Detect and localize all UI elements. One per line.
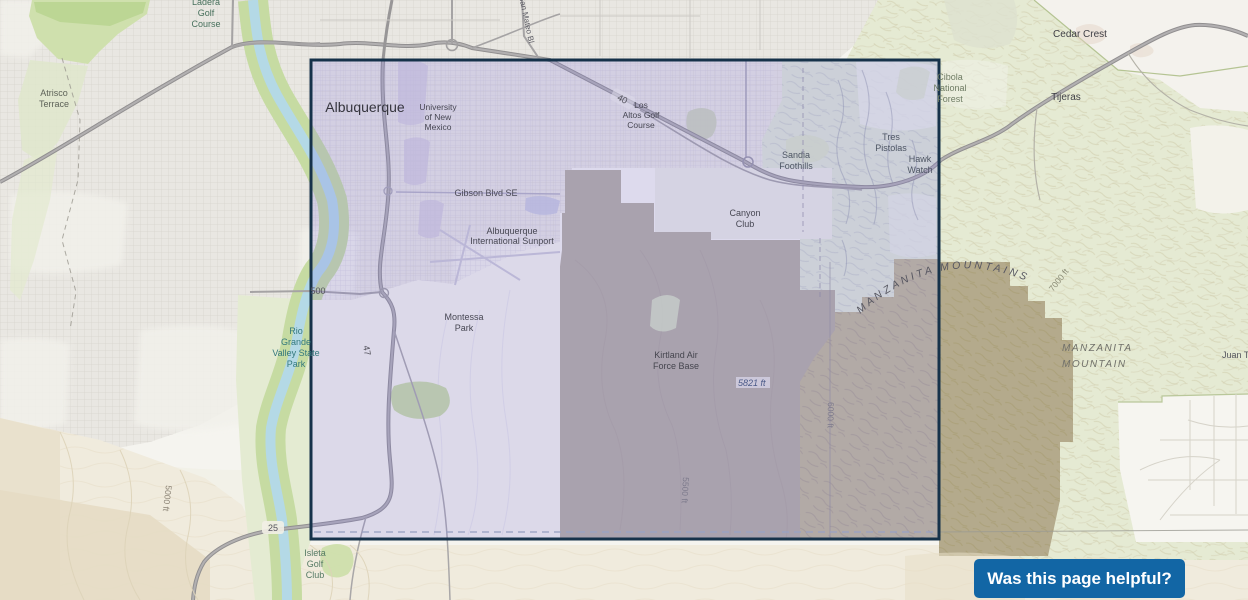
svg-text:Grande: Grande bbox=[281, 337, 311, 347]
svg-text:Forest: Forest bbox=[937, 94, 963, 104]
svg-text:500: 500 bbox=[310, 286, 325, 296]
svg-text:Golf: Golf bbox=[198, 8, 215, 18]
svg-text:Rio: Rio bbox=[289, 326, 303, 336]
svg-text:Albuquerque: Albuquerque bbox=[325, 99, 405, 115]
svg-text:Los: Los bbox=[634, 100, 648, 110]
svg-text:6000 ft: 6000 ft bbox=[826, 402, 836, 429]
svg-text:International Sunport: International Sunport bbox=[470, 236, 554, 246]
svg-text:Terrace: Terrace bbox=[39, 99, 69, 109]
svg-text:Club: Club bbox=[736, 219, 755, 229]
svg-text:Foothills: Foothills bbox=[779, 161, 813, 171]
svg-text:MOUNTAIN: MOUNTAIN bbox=[1062, 359, 1127, 370]
svg-text:Golf: Golf bbox=[307, 559, 324, 569]
svg-text:Ladera: Ladera bbox=[192, 0, 220, 7]
svg-text:of New: of New bbox=[425, 112, 452, 122]
svg-text:Force Base: Force Base bbox=[653, 361, 699, 371]
svg-text:Atrisco: Atrisco bbox=[40, 88, 68, 98]
svg-text:Kirtland Air: Kirtland Air bbox=[654, 350, 698, 360]
svg-text:Watch: Watch bbox=[907, 165, 932, 175]
svg-text:Altos Golf: Altos Golf bbox=[623, 110, 660, 120]
svg-text:Isleta: Isleta bbox=[304, 548, 326, 558]
svg-text:Valley State: Valley State bbox=[272, 348, 319, 358]
svg-text:Hawk: Hawk bbox=[909, 154, 932, 164]
svg-text:47: 47 bbox=[361, 345, 373, 357]
svg-text:Montessa: Montessa bbox=[444, 312, 483, 322]
svg-text:Pistolas: Pistolas bbox=[875, 143, 907, 153]
svg-text:Course: Course bbox=[191, 19, 220, 29]
svg-text:5821 ft: 5821 ft bbox=[738, 378, 766, 388]
svg-text:Tijeras: Tijeras bbox=[1051, 92, 1081, 103]
svg-text:Canyon: Canyon bbox=[729, 208, 760, 218]
svg-text:National: National bbox=[933, 83, 966, 93]
svg-text:Mexico: Mexico bbox=[425, 122, 452, 132]
svg-text:Albuquerque: Albuquerque bbox=[486, 226, 537, 236]
svg-text:Cedar Crest: Cedar Crest bbox=[1053, 29, 1107, 40]
svg-text:25: 25 bbox=[268, 523, 278, 533]
svg-text:Club: Club bbox=[306, 570, 325, 580]
svg-text:Course: Course bbox=[627, 120, 655, 130]
svg-text:Park: Park bbox=[455, 323, 474, 333]
svg-text:MANZANITA: MANZANITA bbox=[1062, 343, 1133, 354]
svg-text:University: University bbox=[419, 102, 457, 112]
svg-text:Cibola: Cibola bbox=[937, 72, 963, 82]
svg-text:Tres: Tres bbox=[882, 132, 900, 142]
svg-text:Juan T: Juan T bbox=[1222, 350, 1248, 360]
svg-text:Park: Park bbox=[287, 359, 306, 369]
svg-text:Gibson Blvd SE: Gibson Blvd SE bbox=[454, 188, 517, 198]
svg-text:5500 ft: 5500 ft bbox=[680, 477, 691, 504]
svg-text:Sandia: Sandia bbox=[782, 150, 810, 160]
